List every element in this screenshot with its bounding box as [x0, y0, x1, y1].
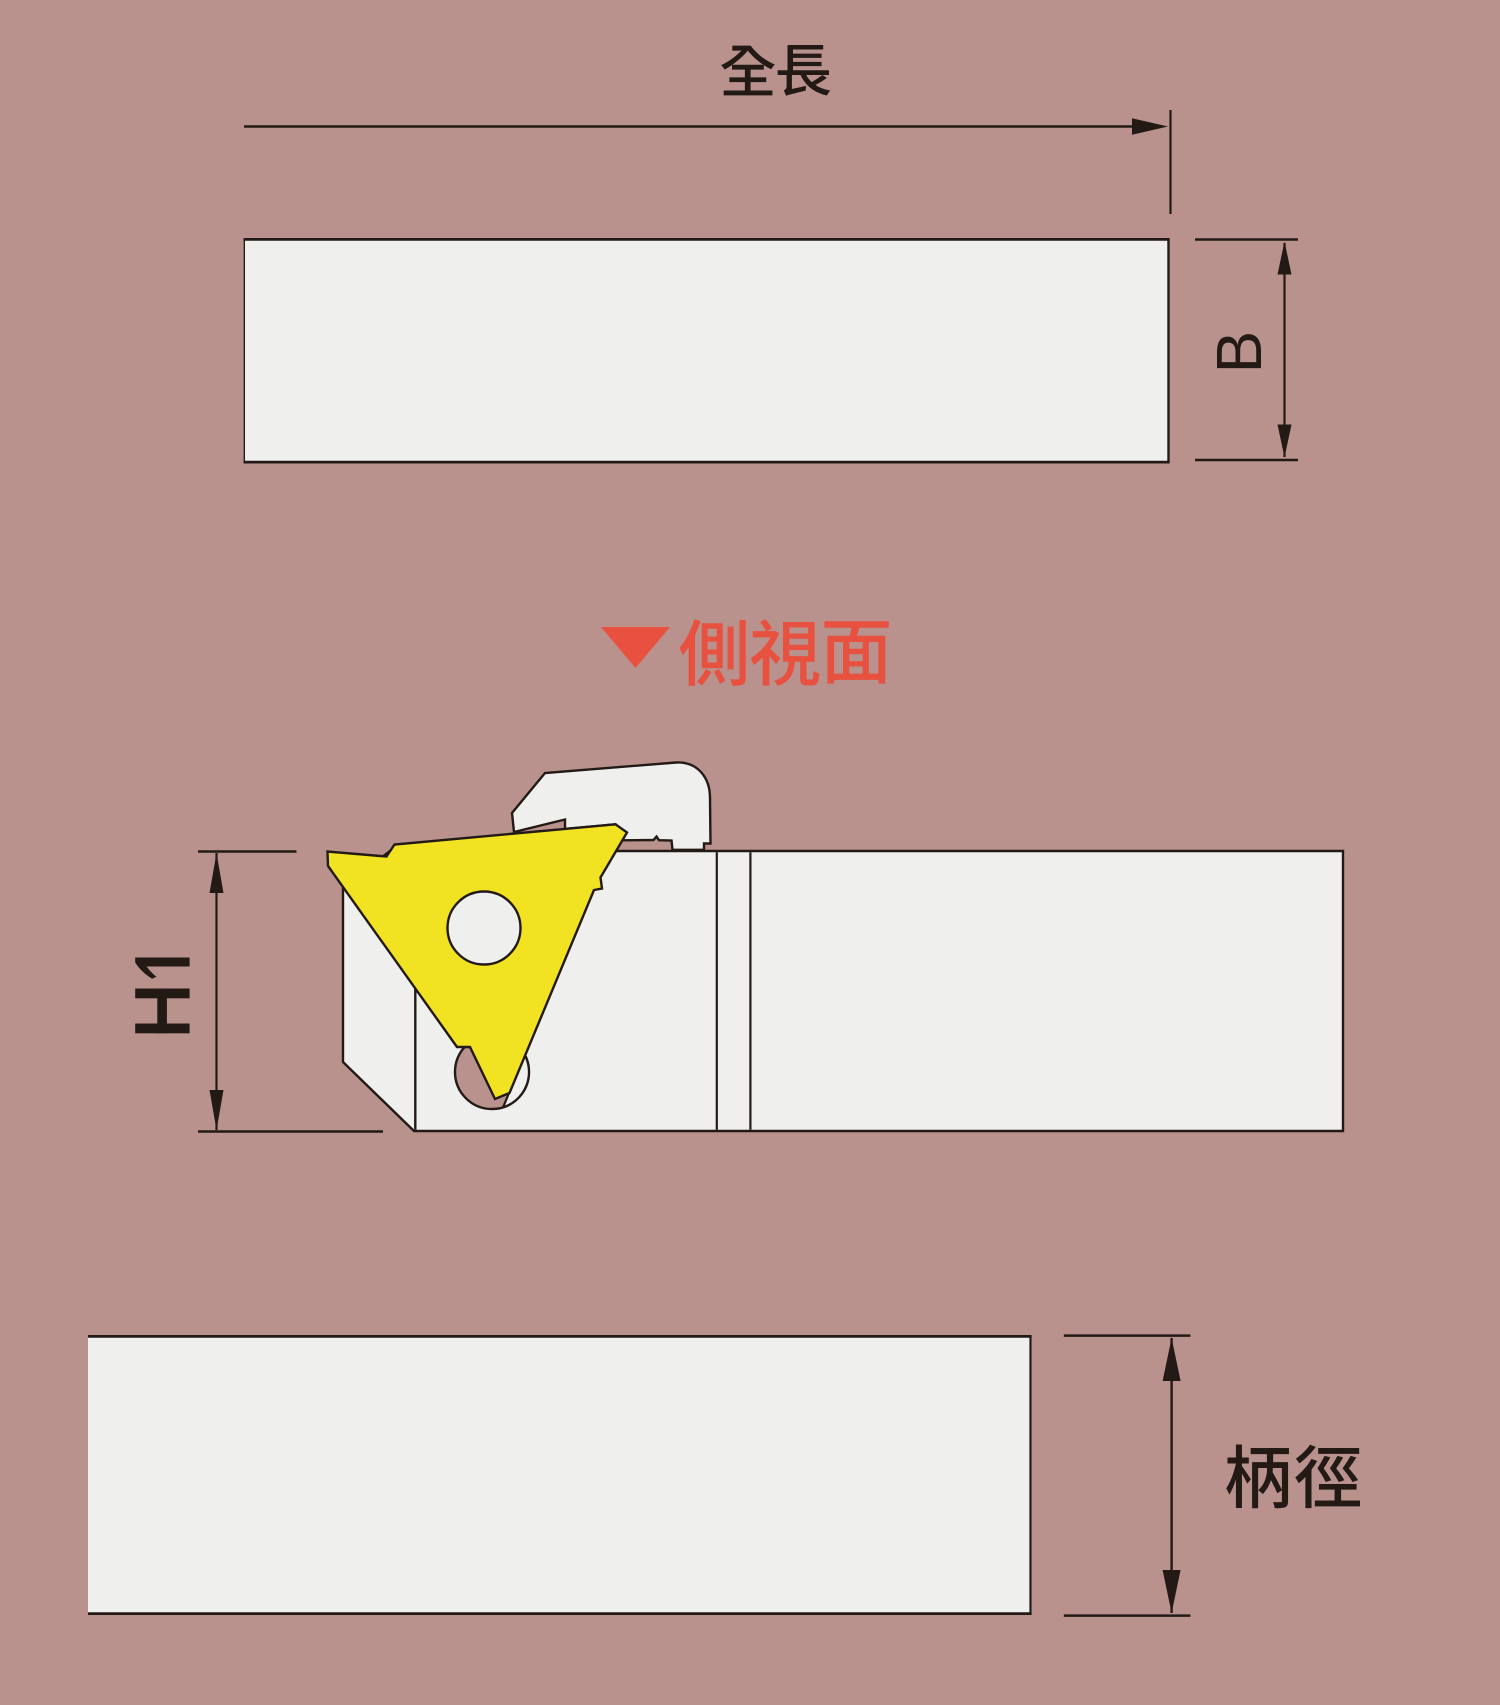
svg-text:B: B: [1203, 331, 1275, 374]
